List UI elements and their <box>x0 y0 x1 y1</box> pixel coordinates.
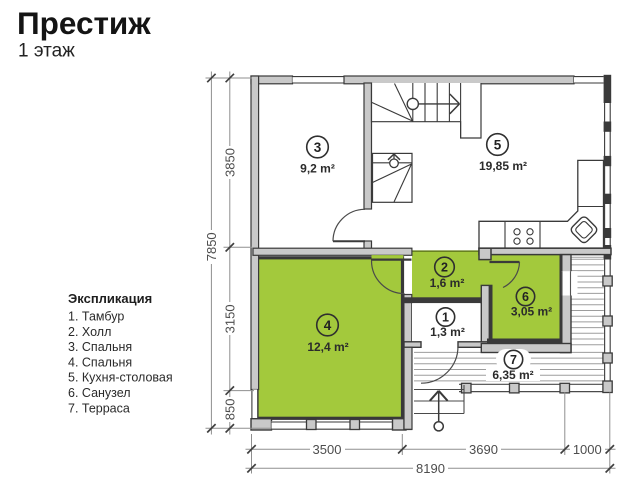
svg-text:9,2 m²: 9,2 m² <box>300 162 335 176</box>
svg-text:3850: 3850 <box>222 148 237 177</box>
svg-text:8190: 8190 <box>416 461 445 476</box>
svg-text:19,85 m²: 19,85 m² <box>479 159 527 173</box>
svg-text:7. Терраса: 7. Терраса <box>68 401 130 415</box>
svg-text:3150: 3150 <box>222 304 237 333</box>
svg-text:4. Спальня: 4. Спальня <box>68 355 132 369</box>
svg-text:850: 850 <box>222 399 237 421</box>
svg-text:7: 7 <box>510 353 517 367</box>
svg-text:1 этаж: 1 этаж <box>18 41 75 62</box>
svg-text:1,6 m²: 1,6 m² <box>430 276 465 290</box>
svg-text:Экспликация: Экспликация <box>68 291 152 306</box>
svg-text:1000: 1000 <box>573 442 602 457</box>
svg-text:3: 3 <box>314 140 322 155</box>
svg-text:5: 5 <box>494 137 502 152</box>
svg-text:12,4 m²: 12,4 m² <box>307 340 348 354</box>
svg-text:1. Тамбур: 1. Тамбур <box>68 310 124 324</box>
svg-text:2. Холл: 2. Холл <box>68 325 111 339</box>
svg-text:3690: 3690 <box>469 442 498 457</box>
svg-text:6. Санузел: 6. Санузел <box>68 386 131 400</box>
svg-text:4: 4 <box>324 318 332 333</box>
svg-text:5. Кухня-столовая: 5. Кухня-столовая <box>68 371 173 385</box>
svg-text:1: 1 <box>442 311 449 325</box>
svg-text:6: 6 <box>522 290 529 304</box>
svg-text:2: 2 <box>441 261 448 275</box>
svg-text:3500: 3500 <box>313 442 342 457</box>
svg-text:1,3 m²: 1,3 m² <box>430 325 465 339</box>
svg-text:7850: 7850 <box>204 232 219 261</box>
svg-text:Престиж: Престиж <box>17 5 151 41</box>
svg-text:3,05 m²: 3,05 m² <box>511 305 552 319</box>
svg-text:3. Спальня: 3. Спальня <box>68 340 132 354</box>
svg-text:6,35 m²: 6,35 m² <box>492 368 533 382</box>
